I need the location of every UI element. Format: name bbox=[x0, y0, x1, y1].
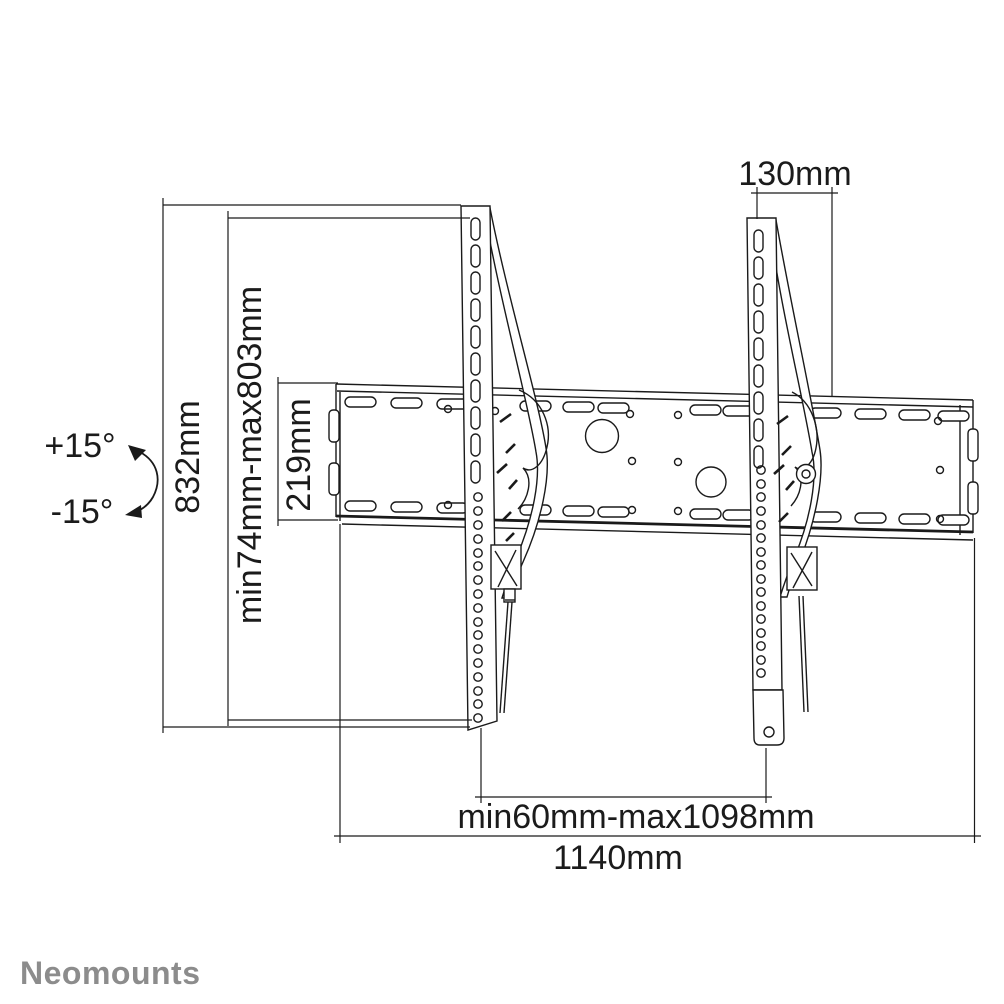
wall-mount-dimension-diagram: 130mm 832mm min74mm-max803mm 219mm +15° … bbox=[0, 0, 1004, 1004]
dim-bracket-spacing-range-label: min60mm-max1098mm bbox=[457, 798, 814, 836]
dim-vesa-height-range-label: min74mm-max803mm bbox=[231, 286, 269, 624]
dim-bracket-width-label: 130mm bbox=[738, 155, 851, 193]
wall-plate-holes bbox=[345, 397, 969, 525]
tilt-arc-arrow bbox=[125, 445, 158, 518]
tilt-positive-label: +15° bbox=[44, 427, 115, 465]
dim-plate-height-label: 219mm bbox=[280, 398, 318, 511]
right-bracket bbox=[747, 218, 821, 745]
dim-total-height-label: 832mm bbox=[169, 400, 207, 513]
dim-total-width-label: 1140mm bbox=[553, 839, 683, 877]
neomounts-logo: Neomounts bbox=[20, 955, 201, 991]
left-bracket bbox=[461, 206, 548, 730]
tilt-negative-label: -15° bbox=[51, 493, 114, 531]
